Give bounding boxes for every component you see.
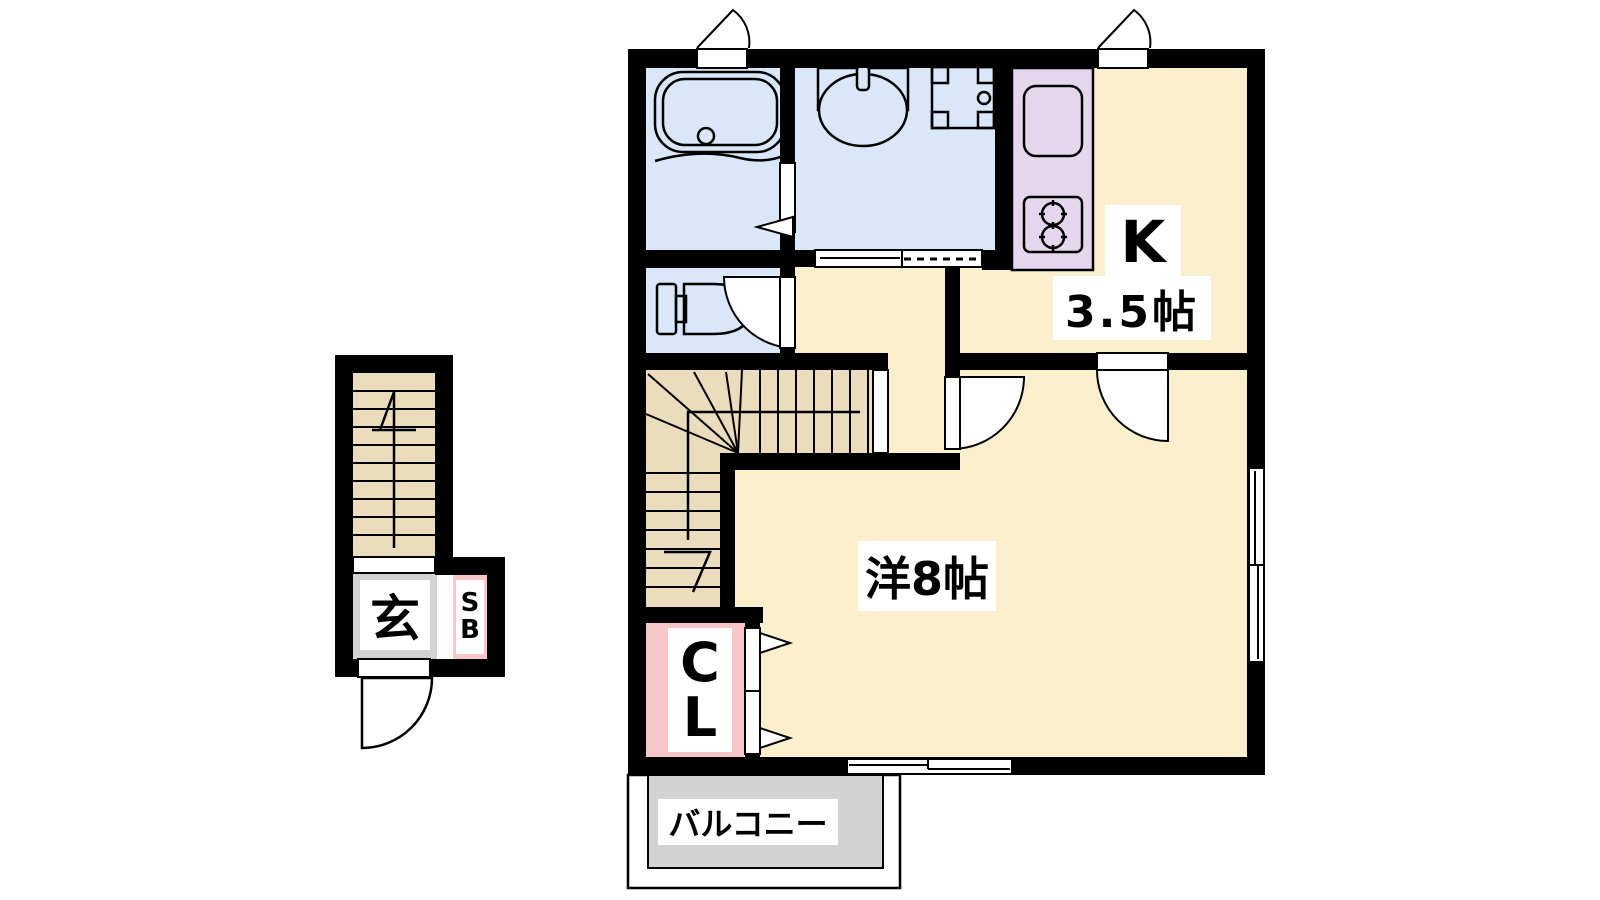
- washroom-sliding-door: [815, 250, 982, 267]
- shoe-box-label: SB: [456, 580, 484, 654]
- kitchen-size-label: 3.5帖: [1053, 276, 1211, 340]
- awning-window-kitchen: [1098, 10, 1150, 68]
- entrance-label: 玄: [360, 580, 430, 650]
- kitchen-counter: [1012, 68, 1093, 270]
- main-unit: [646, 66, 1247, 757]
- floor-plan: K 3.5帖 洋8帖 CL バルコニー 玄 SB: [0, 0, 1600, 900]
- entrance-annex: [335, 355, 505, 748]
- floor-plan-drawing: [0, 0, 1600, 900]
- kitchen-label: K: [1105, 205, 1181, 279]
- balcony-sliding-window: [847, 759, 1012, 774]
- right-sliding-window: [1249, 468, 1264, 662]
- closet-label: CL: [668, 628, 732, 752]
- awning-window-bathroom: [697, 10, 749, 68]
- western-room-label: 洋8帖: [858, 541, 996, 611]
- balcony-label: バルコニー: [658, 799, 838, 845]
- entrance-door: [358, 659, 432, 748]
